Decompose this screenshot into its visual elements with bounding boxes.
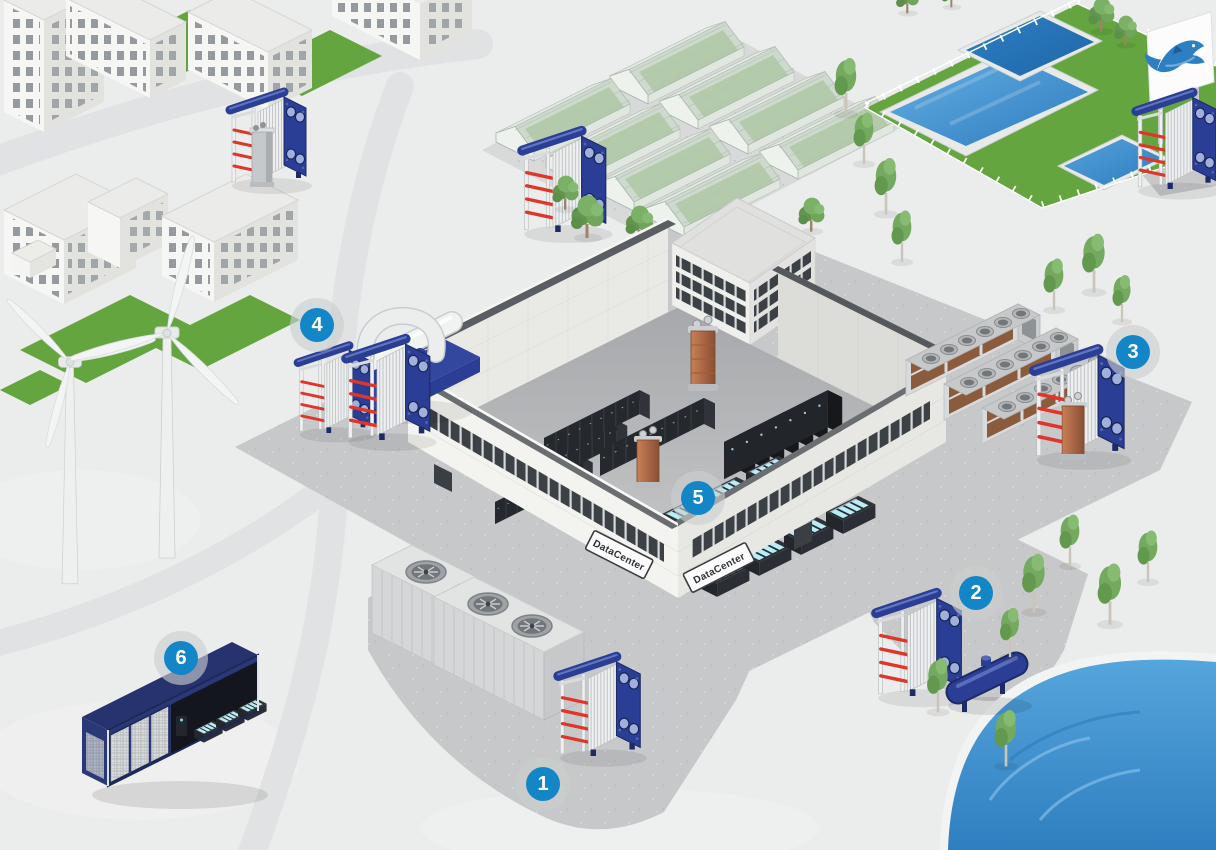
hotspot-badge: 5 — [681, 481, 715, 515]
hotspot-2[interactable]: 2 — [949, 566, 1003, 620]
hotspot-1[interactable]: 1 — [516, 757, 570, 811]
hotspot-badge: 2 — [959, 576, 993, 610]
scene-svg: DataCenter DataCenter — [0, 0, 1216, 850]
hotspot-2-label: 2 — [970, 583, 981, 603]
hotspot-1-label: 1 — [537, 774, 548, 794]
hotspot-4-label: 4 — [311, 315, 322, 335]
hotspot-badge: 1 — [526, 767, 560, 801]
brazed-heat-exchanger — [250, 122, 274, 187]
hotspot-4[interactable]: 4 — [290, 298, 344, 352]
hotspot-6-label: 6 — [175, 648, 186, 668]
hotspot-5[interactable]: 5 — [671, 471, 725, 525]
hotspot-badge: 4 — [300, 308, 334, 342]
hotspot-badge: 6 — [164, 641, 198, 675]
hotspot-5-label: 5 — [692, 488, 703, 508]
brazed-heat-exchanger — [688, 316, 718, 391]
isometric-campus-scene: DataCenter DataCenter — [0, 0, 1216, 850]
hotspot-3[interactable]: 3 — [1106, 325, 1160, 379]
hotspot-6[interactable]: 6 — [154, 631, 208, 685]
hotspot-3-label: 3 — [1127, 342, 1138, 362]
brazed-heat-exchanger — [1059, 393, 1087, 461]
hotspot-badge: 3 — [1116, 335, 1150, 369]
